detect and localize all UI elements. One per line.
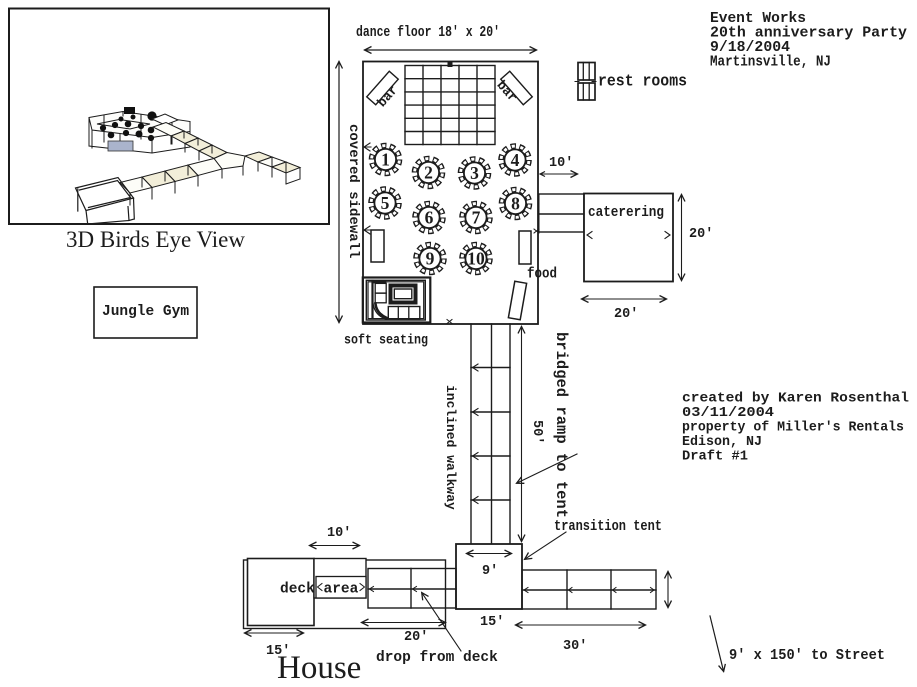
svg-text:covered sidewall: covered sidewall	[345, 124, 361, 258]
svg-text:5: 5	[381, 193, 390, 213]
svg-text:9' x 150' to Street: 9' x 150' to Street	[729, 648, 885, 664]
svg-text:20': 20'	[689, 227, 713, 242]
svg-text:rest rooms: rest rooms	[598, 73, 687, 92]
svg-text:20': 20'	[614, 307, 638, 322]
svg-text:1: 1	[381, 150, 390, 170]
svg-text:Draft #1: Draft #1	[682, 449, 748, 465]
svg-text:House: House	[277, 650, 361, 686]
svg-text:10': 10'	[549, 156, 573, 171]
svg-text:3: 3	[470, 163, 479, 183]
svg-text:2: 2	[424, 163, 433, 183]
svg-text:3D Birds Eye View: 3D Birds Eye View	[66, 227, 245, 252]
svg-text:30': 30'	[563, 639, 587, 654]
svg-text:drop from deck: drop from deck	[376, 650, 498, 666]
svg-text:bridged ramp to tent: bridged ramp to tent	[552, 332, 570, 518]
svg-text:soft seating: soft seating	[344, 333, 428, 349]
svg-text:8: 8	[511, 194, 520, 214]
svg-text:10: 10	[467, 249, 485, 269]
svg-text:transition tent: transition tent	[554, 518, 662, 535]
svg-text:15': 15'	[480, 615, 504, 630]
svg-text:food: food	[527, 266, 557, 283]
svg-text:9': 9'	[482, 564, 498, 579]
svg-text:caterering: caterering	[588, 204, 664, 221]
svg-text:inclined walkway: inclined walkway	[443, 385, 458, 510]
svg-text:9: 9	[426, 249, 435, 269]
svg-text:10': 10'	[327, 526, 351, 541]
svg-text:4: 4	[511, 150, 520, 170]
svg-text:dance floor 18' x 20': dance floor 18' x 20'	[356, 24, 500, 41]
svg-text:20': 20'	[404, 630, 428, 645]
svg-text:Martinsville, NJ: Martinsville, NJ	[710, 55, 831, 71]
svg-text:Jungle Gym: Jungle Gym	[102, 304, 189, 320]
svg-text:50': 50'	[529, 420, 544, 444]
svg-text:6: 6	[425, 208, 434, 228]
svg-text:7: 7	[472, 208, 481, 228]
svg-text:deck area: deck area	[280, 582, 359, 598]
